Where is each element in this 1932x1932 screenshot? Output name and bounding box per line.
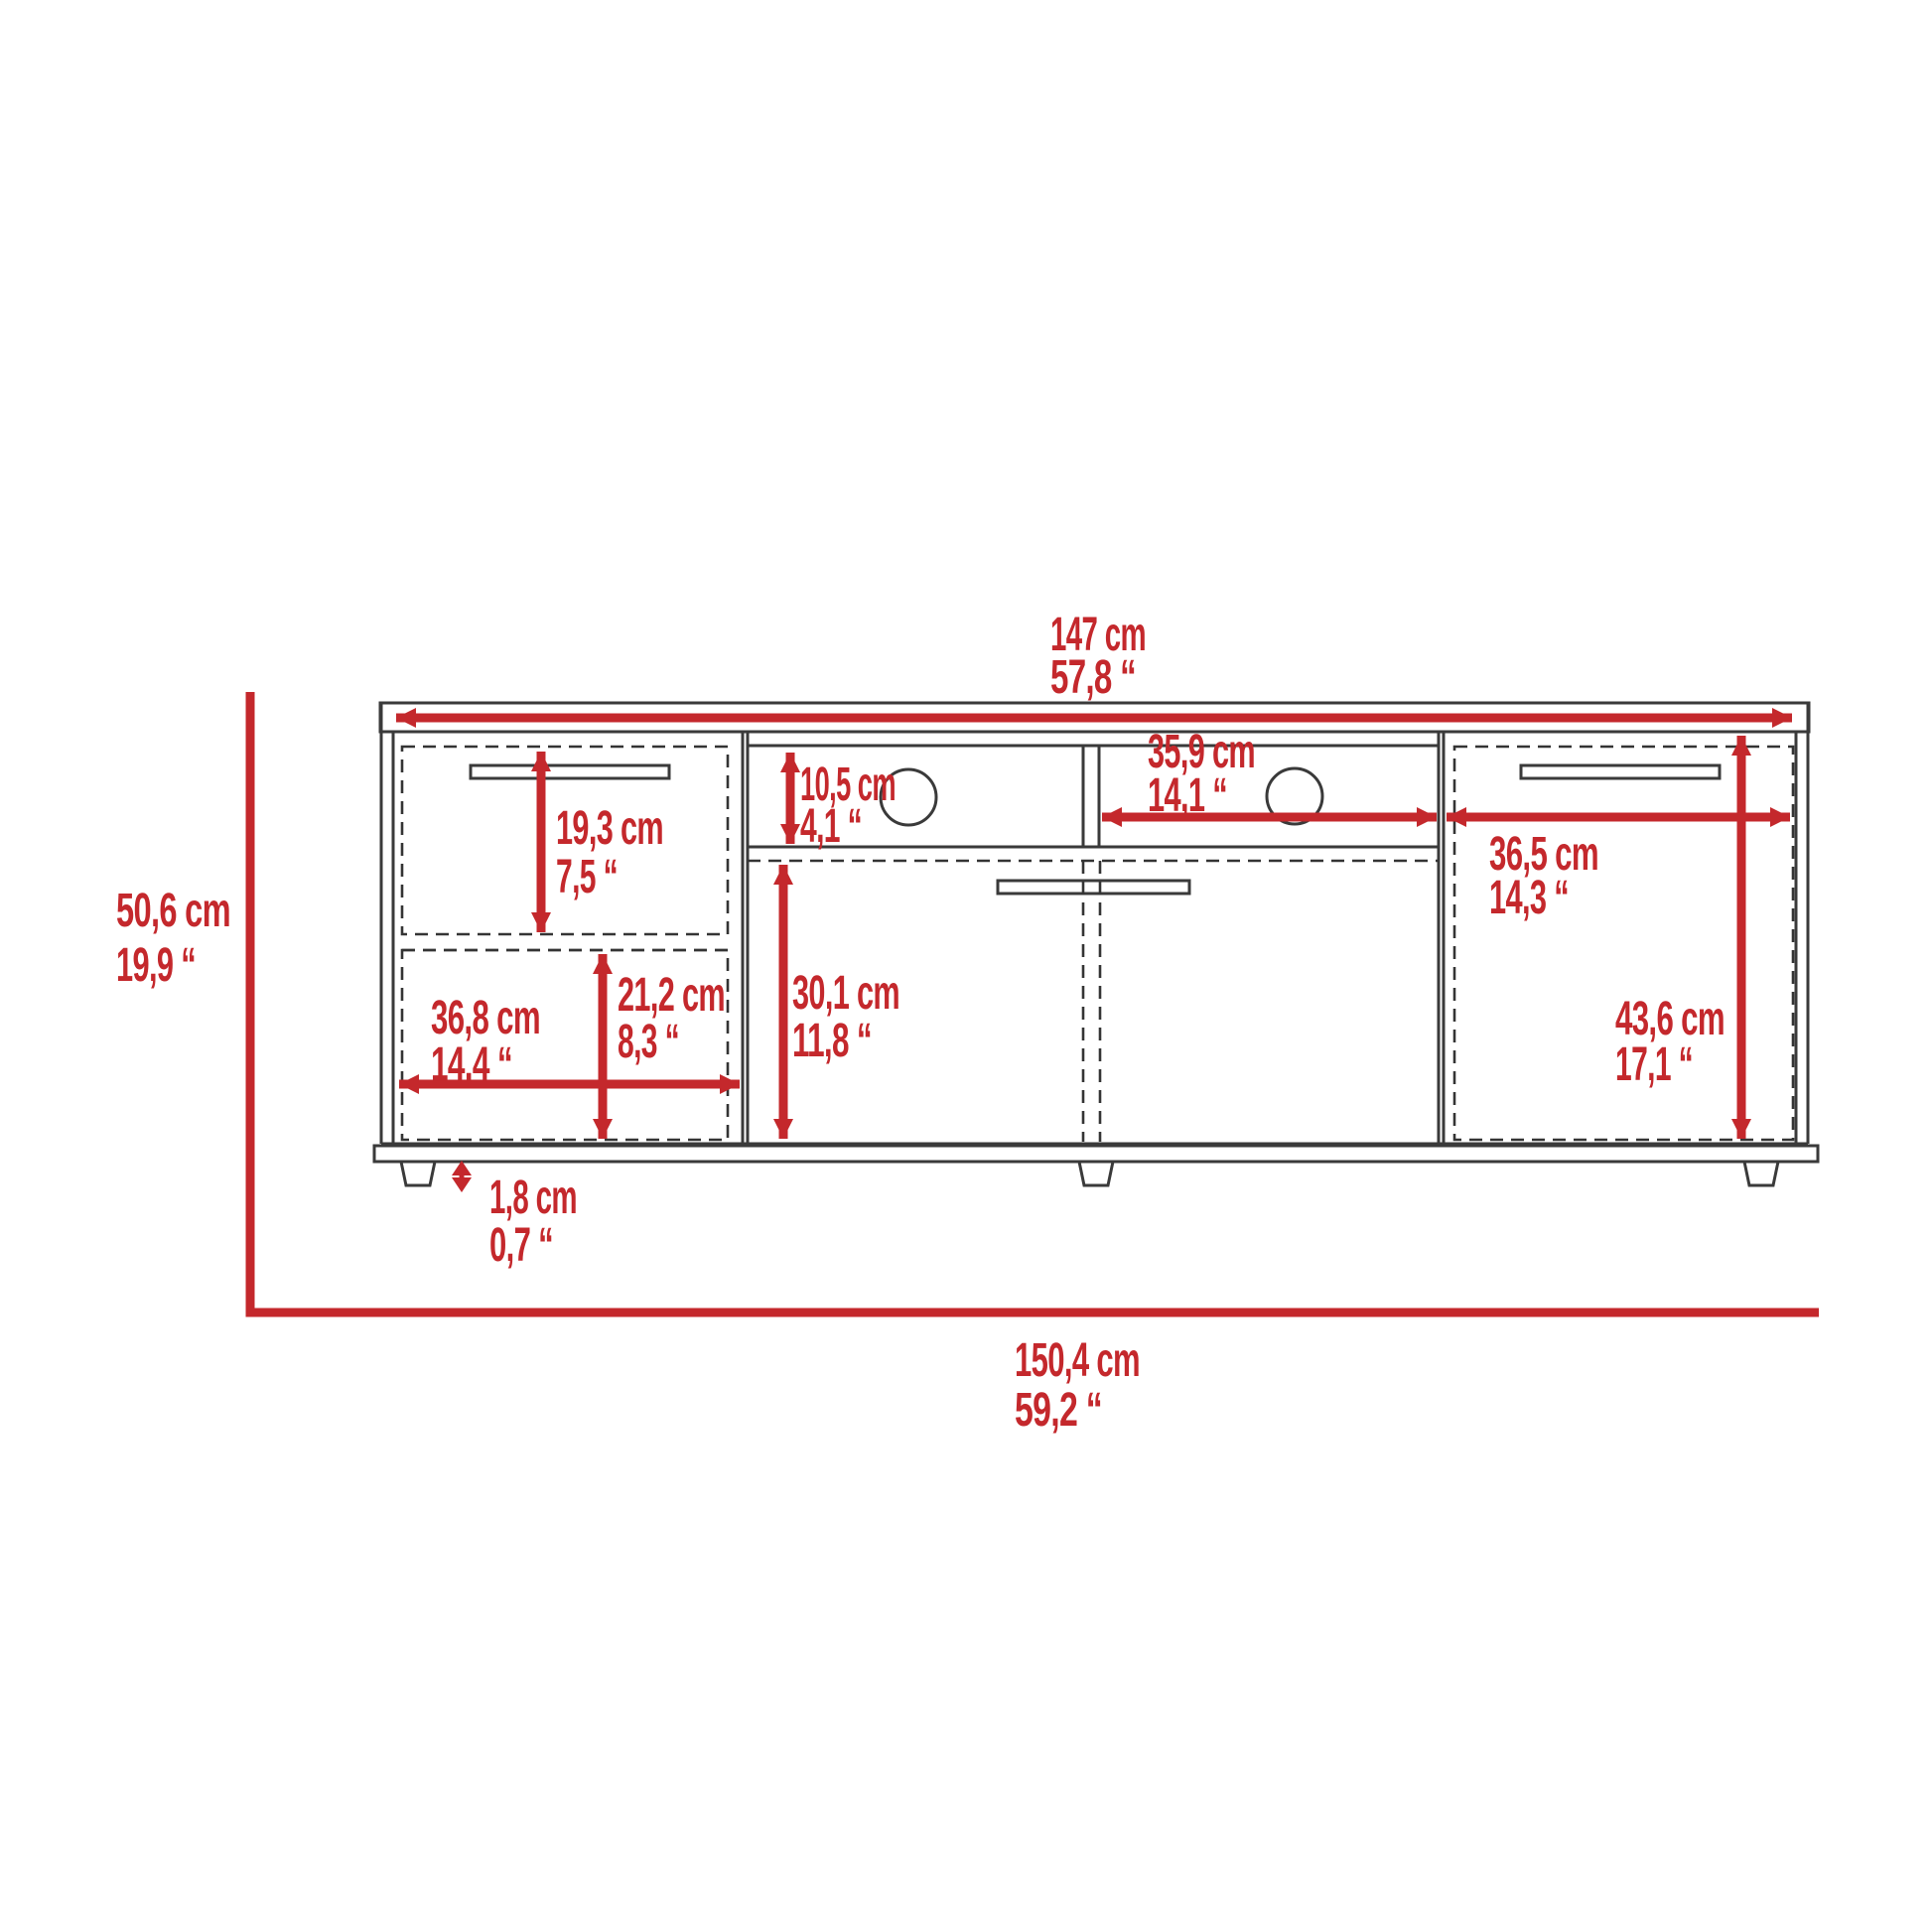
label-left-opening-height-in: 8,3 “ xyxy=(618,1016,679,1068)
label-shelf-opening-width-in: 14,1 “ xyxy=(1148,769,1227,822)
tv-stand-dimension-drawing: 147 cm 57,8 “ 50,6 cm 19,9 “ 35,9 cm 14,… xyxy=(0,0,1932,1932)
center-doors-handle xyxy=(998,881,1189,894)
cabinet-structure xyxy=(374,703,1818,1185)
label-overall-height-cm: 50,6 cm xyxy=(116,885,230,937)
label-shelf-opening-height-in: 4,1 “ xyxy=(800,800,862,853)
label-overall-width-in: 57,8 “ xyxy=(1050,651,1136,704)
arrow-foot-height xyxy=(452,1161,472,1192)
label-base-total-width-in: 59,2 “ xyxy=(1015,1384,1102,1437)
foot-right xyxy=(1744,1162,1778,1185)
label-left-opening-height-cm: 21,2 cm xyxy=(618,969,725,1022)
label-center-opening-height-in: 11,8 “ xyxy=(792,1015,872,1067)
label-foot-height-in: 0,7 “ xyxy=(489,1219,553,1272)
label-left-door-height-in: 7,5 “ xyxy=(556,851,618,903)
foot-left xyxy=(401,1162,435,1185)
label-left-section-width-cm: 36,8 cm xyxy=(431,992,540,1044)
label-right-door-height-in: 17,1 “ xyxy=(1615,1038,1693,1091)
label-center-opening-height-cm: 30,1 cm xyxy=(792,967,899,1020)
label-right-section-width-in: 14,3 “ xyxy=(1489,872,1569,924)
label-foot-height-cm: 1,8 cm xyxy=(489,1172,577,1224)
label-overall-height-in: 19,9 “ xyxy=(116,939,196,992)
dimension-diagram-page: 147 cm 57,8 “ 50,6 cm 19,9 “ 35,9 cm 14,… xyxy=(0,0,1932,1932)
left-door-handle xyxy=(471,765,669,778)
label-base-total-width-cm: 150,4 cm xyxy=(1015,1334,1140,1387)
cabinet-plinth xyxy=(374,1146,1818,1162)
right-door-handle xyxy=(1521,765,1720,778)
label-left-door-height-cm: 19,3 cm xyxy=(556,802,663,855)
label-left-section-width-in: 14,4 “ xyxy=(431,1038,512,1091)
foot-center xyxy=(1079,1162,1113,1185)
